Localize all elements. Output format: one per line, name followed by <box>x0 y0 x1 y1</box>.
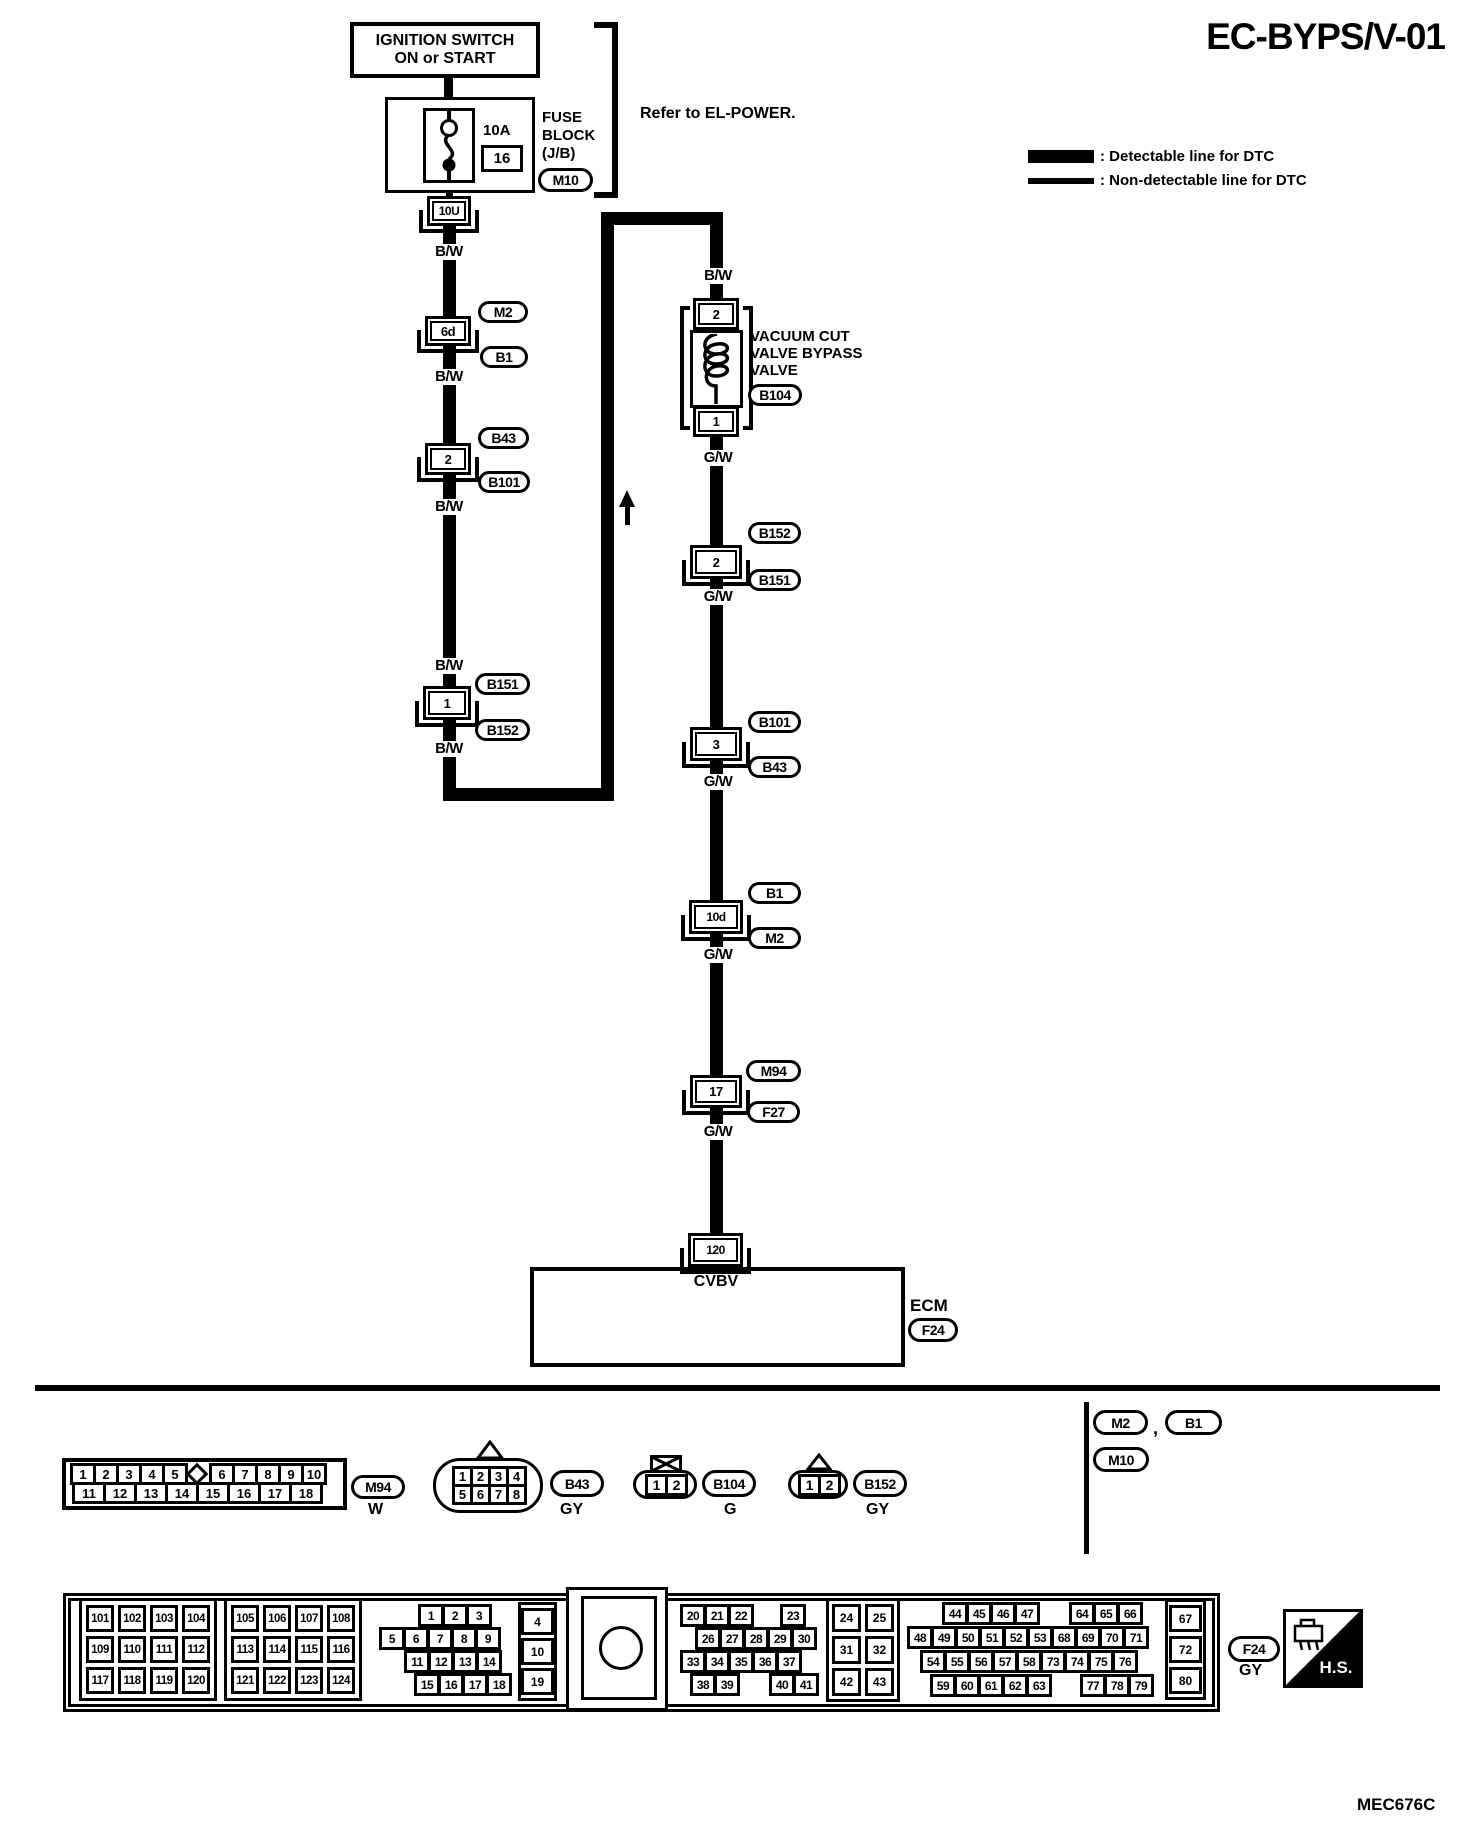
wire-color-label: B/W <box>698 268 738 284</box>
flow-arrow-stem <box>625 505 630 525</box>
pin-cell: 51 <box>979 1626 1005 1649</box>
note-divider-bar <box>1084 1402 1089 1554</box>
hs-view-icon: H.S. <box>1283 1609 1363 1688</box>
pin-cell: 31 <box>832 1636 861 1664</box>
connector-pin: 3 <box>695 732 737 756</box>
ref-label: F24 <box>1243 1641 1266 1657</box>
wire-segment <box>710 225 723 300</box>
connector-right-3: 3 <box>690 727 742 761</box>
ref-label: B1 <box>496 349 513 365</box>
pin-cell: 29 <box>767 1627 793 1650</box>
pin-cell: 7 <box>427 1627 453 1650</box>
b104-pins: 12 <box>645 1474 685 1496</box>
connector-10u: 10U <box>427 196 471 226</box>
connector-ref-f24-view: F24 <box>1228 1636 1280 1662</box>
valve-name-line1: VACUUM CUT <box>750 328 850 345</box>
ref-label: B104 <box>759 387 790 403</box>
connector-pin-10u: 10U <box>432 201 466 221</box>
connector-color-b43: GY <box>560 1501 583 1519</box>
pin-cell: 12 <box>428 1650 454 1673</box>
pin-cell: 46 <box>990 1602 1016 1625</box>
pin-cell: 72 <box>1169 1636 1202 1663</box>
pin-cell: 48 <box>907 1626 933 1649</box>
connector-ecm-120: 120 <box>688 1233 743 1267</box>
pin-cell: 77 <box>1080 1674 1106 1697</box>
pin-cell: 36 <box>752 1650 778 1673</box>
fuse-symbol-box <box>423 108 475 183</box>
pin-cell: 39 <box>714 1673 740 1696</box>
wire-bypass-vertical <box>601 212 614 801</box>
fuse-block-label3: (J/B) <box>542 145 575 162</box>
pin-cell: 117 <box>86 1667 114 1694</box>
wire-color-label: B/W <box>429 658 469 674</box>
pin-cell: 110 <box>118 1636 146 1663</box>
connector-pin: 1 <box>698 411 734 432</box>
ecm-block-d-r3: 3334353637 <box>680 1650 800 1673</box>
ecm-block-d-r2: 2627282930 <box>695 1627 815 1650</box>
pin-cell: 13 <box>134 1482 168 1504</box>
pin-cell: 21 <box>704 1604 730 1627</box>
connector-left-2: 2 <box>425 443 471 475</box>
pin-cell: 17 <box>462 1673 488 1696</box>
ecm-block-f-r3: 545556575873747576 <box>920 1650 1136 1673</box>
connector-pin: 2 <box>695 550 737 574</box>
pin-cell: 55 <box>944 1650 970 1673</box>
ecm-block-b: 105106107108113114115116121122123124 <box>224 1598 362 1701</box>
pin-cell: 12 <box>103 1482 137 1504</box>
ecm-block-f-r1a: 44454647 <box>942 1602 1038 1625</box>
pin-cell: 2 <box>442 1604 468 1627</box>
wire-color-label: G/W <box>697 774 739 790</box>
pin-cell: 101 <box>86 1605 114 1632</box>
bolt-hole-icon <box>599 1626 643 1670</box>
bowtie-keyway-icon <box>650 1455 682 1473</box>
wire-color-label: G/W <box>697 450 739 466</box>
pin-cell: 64 <box>1069 1602 1095 1625</box>
pin-cell: 116 <box>327 1636 355 1663</box>
pin-cell: 107 <box>295 1605 323 1632</box>
pin-cell: 119 <box>150 1667 178 1694</box>
ref-label: M2 <box>494 304 512 320</box>
valve-name-line2: VALVE BYPASS <box>750 345 863 362</box>
connector-ref-m94: M94 <box>351 1475 405 1499</box>
pin-cell: 115 <box>295 1636 323 1663</box>
triangle-keyway-icon <box>806 1453 832 1471</box>
pin-cell: 65 <box>1093 1602 1119 1625</box>
pin-cell: 120 <box>182 1667 210 1694</box>
pin-cell: 16 <box>438 1673 464 1696</box>
connector-pin: 1 <box>428 691 466 715</box>
connector-6d: 6d <box>425 316 471 346</box>
pin-cell: 15 <box>414 1673 440 1696</box>
ref-label: B43 <box>565 1476 589 1492</box>
pin-cell: 1 <box>418 1604 444 1627</box>
pin-cell: 9 <box>475 1627 501 1650</box>
valve-coil-box <box>690 330 743 408</box>
pin-cell: 38 <box>690 1673 716 1696</box>
ecm-label: ECM <box>910 1296 948 1316</box>
pin-cell: 2 <box>665 1474 688 1496</box>
ref-label: M94 <box>365 1479 391 1495</box>
ecm-block-c-r1: 123 <box>418 1604 490 1627</box>
pin-cell: 63 <box>1026 1674 1052 1697</box>
legend-nondetectable-swatch <box>1028 178 1094 184</box>
pin-cell: 76 <box>1112 1650 1138 1673</box>
connector-ref: M94 <box>746 1060 801 1082</box>
pin-cell: 40 <box>769 1673 795 1696</box>
pin-cell: 20 <box>680 1604 706 1627</box>
connector-ref-f24: F24 <box>908 1318 958 1342</box>
pin-cell: 45 <box>966 1602 992 1625</box>
pin-cell: 54 <box>920 1650 946 1673</box>
ref-label: M10 <box>1108 1452 1134 1468</box>
ecm-block-c-r3: 11121314 <box>404 1650 500 1673</box>
fuse-number-box: 16 <box>481 145 523 172</box>
pin-cell: 5 <box>379 1627 405 1650</box>
pin-cell: 49 <box>931 1626 957 1649</box>
pin-cell: 78 <box>1104 1674 1130 1697</box>
pin-cell: 33 <box>680 1650 706 1673</box>
pin-cell: 75 <box>1088 1650 1114 1673</box>
pin-cell: 123 <box>295 1667 323 1694</box>
ref-label: B101 <box>488 474 519 490</box>
pin-cell: 122 <box>263 1667 291 1694</box>
pin-cell: 23 <box>780 1604 806 1627</box>
pin-cell: 69 <box>1075 1626 1101 1649</box>
pin-cell: 118 <box>118 1667 146 1694</box>
ecm-block-d-r4a: 3839 <box>690 1673 738 1696</box>
connector-ref: B43 <box>478 427 529 449</box>
pin-cell: 58 <box>1016 1650 1042 1673</box>
figure-code: MEC676C <box>1357 1795 1435 1815</box>
pin-cell: 70 <box>1099 1626 1125 1649</box>
connector-pin: 2 <box>698 303 734 325</box>
connector-ref-b104: B104 <box>748 384 802 406</box>
wiring-diagram-page: { "title": "EC-BYPS/V-01", "legend": { "… <box>0 0 1472 1840</box>
connector-ref: B152 <box>475 719 530 741</box>
pin-cell: 4 <box>521 1608 554 1635</box>
ecm-block-c-r4: 15161718 <box>414 1673 510 1696</box>
ref-label: F24 <box>922 1322 945 1338</box>
connector-ref-m10-label: M10 <box>553 172 579 188</box>
connector-face-b152: 12 <box>788 1470 848 1499</box>
pin-cell: 121 <box>231 1667 259 1694</box>
connector-pin: 17 <box>695 1080 737 1103</box>
connector-ref: B152 <box>748 522 801 544</box>
ref-label: B151 <box>487 676 518 692</box>
wire-color-label: B/W <box>429 369 469 385</box>
ecm-block-d-r1b: 23 <box>780 1604 804 1627</box>
pin-cell: 3 <box>466 1604 492 1627</box>
pin-cell: 80 <box>1169 1667 1202 1694</box>
pin-cell: 59 <box>930 1674 956 1697</box>
valve-pin-1: 1 <box>693 406 739 437</box>
connector-ref: B1 <box>748 882 801 904</box>
pin-cell: 8 <box>506 1484 527 1505</box>
pin-cell: 30 <box>791 1627 817 1650</box>
wire-color-label: G/W <box>697 589 739 605</box>
ecm-block-f-r4b: 777879 <box>1080 1674 1152 1697</box>
ecm-block-a-cells: 101102103104109110111112117118119120 <box>82 1601 214 1698</box>
fuse-block-label1: FUSE <box>542 109 582 126</box>
ref-label: B101 <box>759 714 790 730</box>
pin-cell: 10 <box>521 1638 554 1665</box>
connector-ref-b152-view: B152 <box>853 1470 907 1497</box>
pin-cell: 18 <box>486 1673 512 1696</box>
fuse-block-label2: BLOCK <box>542 127 595 144</box>
pin-cell: 44 <box>942 1602 968 1625</box>
ecm-block-e: 242531324243 <box>826 1598 900 1702</box>
pin-cell: 111 <box>150 1636 178 1663</box>
page-title: EC-BYPS/V-01 <box>1095 16 1445 58</box>
legend-detectable-swatch <box>1028 150 1094 163</box>
ref-label: M2 <box>765 930 783 946</box>
connector-ref: B101 <box>748 711 801 733</box>
pin-cell: 11 <box>72 1482 106 1504</box>
triangle-keyway-icon <box>476 1440 504 1460</box>
ignition-switch-box: IGNITION SWITCH ON or START <box>350 22 540 78</box>
note-ref-m2: M2 <box>1093 1410 1148 1435</box>
pin-cell: 35 <box>728 1650 754 1673</box>
connector-pin: 2 <box>430 448 466 470</box>
wire-color-label: G/W <box>697 1124 739 1140</box>
fuse-rating: 10A <box>483 122 511 139</box>
legend-nondetectable-label: : Non-detectable line for DTC <box>1100 172 1307 189</box>
pin-cell: 103 <box>150 1605 178 1632</box>
pin-cell: 6 <box>403 1627 429 1650</box>
pin-cell: 42 <box>832 1668 861 1696</box>
fuse-number: 16 <box>494 150 511 167</box>
connector-ref: B43 <box>748 756 801 778</box>
ref-label: B152 <box>487 722 518 738</box>
pin-cell: 18 <box>289 1482 323 1504</box>
m94-row2: 1112131415161718 <box>72 1482 343 1504</box>
ecm-bolt-inner <box>581 1596 657 1700</box>
ecm-block-f-r2: 48495051525368697071 <box>907 1626 1147 1649</box>
ecm-block-d-r4b: 4041 <box>769 1673 817 1696</box>
connector-pin: 120 <box>693 1238 738 1262</box>
note-ref-m10: M10 <box>1093 1447 1149 1472</box>
pin-cell: 17 <box>258 1482 292 1504</box>
ref-label: B104 <box>713 1476 744 1492</box>
fuse-icon <box>426 111 472 180</box>
valve-name-line3: VALVE <box>750 362 798 379</box>
note-comma: , <box>1153 1418 1158 1439</box>
hs-label: H.S. <box>1319 1658 1352 1677</box>
pin-cell: 24 <box>832 1604 861 1632</box>
pin-cell: 2 <box>818 1474 841 1496</box>
pin-cell: 26 <box>695 1627 721 1650</box>
pin-cell: 53 <box>1027 1626 1053 1649</box>
connector-ref-b104-view: B104 <box>702 1470 756 1497</box>
pin-cell: 56 <box>968 1650 994 1673</box>
valve-cradle-left <box>680 306 690 430</box>
pin-cell: 105 <box>231 1605 259 1632</box>
connector-ref: M2 <box>748 927 801 949</box>
pin-cell: 124 <box>327 1667 355 1694</box>
pin-cell: 113 <box>231 1636 259 1663</box>
pin-cell: 66 <box>1117 1602 1143 1625</box>
pin-cell: 60 <box>954 1674 980 1697</box>
connector-ref-m10: M10 <box>538 168 593 192</box>
refer-note: Refer to EL-POWER. <box>640 105 796 123</box>
connector-color-f24: GY <box>1239 1662 1262 1680</box>
connector-left-1: 1 <box>423 686 471 720</box>
ref-label: B43 <box>762 759 786 775</box>
pin-cell: 15 <box>196 1482 230 1504</box>
pin-cell: 43 <box>865 1668 894 1696</box>
pin-cell: 61 <box>978 1674 1004 1697</box>
connector-face-b43: 1234 5678 <box>433 1458 543 1513</box>
pin-cell: 79 <box>1128 1674 1154 1697</box>
connector-pin: 6d <box>430 321 466 341</box>
pin-cell: 27 <box>719 1627 745 1650</box>
connector-ref: M2 <box>478 301 528 323</box>
pin-cell: 104 <box>182 1605 210 1632</box>
ecm-block-a: 101102103104109110111112117118119120 <box>79 1598 217 1701</box>
ignition-switch-line1: IGNITION SWITCH <box>354 32 536 50</box>
ecm-col-left: 41019 <box>518 1602 557 1701</box>
pin-cell: 28 <box>743 1627 769 1650</box>
legend-detectable-label: : Detectable line for DTC <box>1100 148 1274 165</box>
connector-ref: B1 <box>480 346 528 368</box>
connector-color-m94: W <box>368 1501 383 1519</box>
ecm-bolt-housing <box>566 1587 668 1711</box>
ecm-block-f-r1b: 646566 <box>1069 1602 1141 1625</box>
section-divider <box>35 1385 1440 1391</box>
coil-icon <box>693 334 740 404</box>
pin-cell: 22 <box>728 1604 754 1627</box>
pin-cell: 52 <box>1003 1626 1029 1649</box>
connector-ref: F27 <box>747 1101 800 1123</box>
connector-ref: B101 <box>478 471 530 493</box>
pin-cell: 11 <box>404 1650 430 1673</box>
ref-label: B1 <box>766 885 783 901</box>
pin-cell: 14 <box>476 1650 502 1673</box>
ecm-block-d-r1a: 202122 <box>680 1604 752 1627</box>
wire-color-label: G/W <box>697 947 739 963</box>
b43-row2: 5678 <box>452 1484 524 1505</box>
ecm-block-b-cells: 105106107108113114115116121122123124 <box>227 1601 359 1698</box>
pin-cell: 57 <box>992 1650 1018 1673</box>
pin-cell: 102 <box>118 1605 146 1632</box>
ref-label: B1 <box>1185 1415 1202 1431</box>
ref-label: M2 <box>1111 1415 1129 1431</box>
ecm-connector-assembly: 101102103104109110111112117118119120 105… <box>63 1593 1220 1712</box>
pin-cell: 14 <box>165 1482 199 1504</box>
ecm-block-f-r4a: 5960616263 <box>930 1674 1050 1697</box>
connector-face-b104: 12 <box>633 1470 697 1499</box>
ecm-signal-label: CVBV <box>666 1273 766 1291</box>
pin-cell: 25 <box>865 1604 894 1632</box>
ecm-block-e-cells: 242531324243 <box>829 1601 897 1699</box>
ref-label: B152 <box>864 1476 895 1492</box>
valve-pin-2: 2 <box>693 298 739 330</box>
connector-right-17: 17 <box>690 1075 742 1108</box>
connector-ref: B151 <box>475 673 530 695</box>
ignition-switch-line2: ON or START <box>354 50 536 68</box>
pin-cell: 112 <box>182 1636 210 1663</box>
pin-cell: 106 <box>263 1605 291 1632</box>
pin-cell: 73 <box>1040 1650 1066 1673</box>
connector-face-m94: 12345 678910 1112131415161718 <box>62 1458 347 1510</box>
wire-top-horizontal <box>602 212 723 225</box>
pin-cell: 68 <box>1051 1626 1077 1649</box>
pin-cell: 37 <box>776 1650 802 1673</box>
pin-cell: 108 <box>327 1605 355 1632</box>
pin-cell: 62 <box>1002 1674 1028 1697</box>
ecm-block-c-r2: 56789 <box>379 1627 499 1650</box>
note-ref-b1: B1 <box>1165 1410 1222 1435</box>
ecm-col-right: 677280 <box>1165 1599 1206 1700</box>
pin-cell: 41 <box>793 1673 819 1696</box>
wire-segment <box>443 226 456 318</box>
pin-cell: 71 <box>1123 1626 1149 1649</box>
connector-right-10d: 10d <box>689 900 743 934</box>
pin-cell: 34 <box>704 1650 730 1673</box>
connector-pin: 10d <box>694 905 738 929</box>
pin-cell: 67 <box>1169 1605 1202 1632</box>
wire-color-label: B/W <box>429 499 469 515</box>
wire-segment <box>443 346 456 445</box>
connector-ref-b43-view: B43 <box>550 1470 604 1497</box>
ref-label: B151 <box>759 572 790 588</box>
refer-bracket <box>594 22 618 198</box>
connector-right-2: 2 <box>690 545 742 579</box>
pin-cell: 32 <box>865 1636 894 1664</box>
pin-cell: 50 <box>955 1626 981 1649</box>
pin-cell: 47 <box>1014 1602 1040 1625</box>
wire-bottom-horizontal <box>443 788 614 801</box>
ref-label: F27 <box>762 1104 785 1120</box>
pin-cell: 74 <box>1064 1650 1090 1673</box>
ref-label: M94 <box>761 1063 787 1079</box>
ref-label: B152 <box>759 525 790 541</box>
connector-ref: B151 <box>748 569 801 591</box>
b152-pins: 12 <box>798 1474 838 1496</box>
ref-label: B43 <box>491 430 515 446</box>
pin-cell: 13 <box>452 1650 478 1673</box>
pin-cell: 8 <box>451 1627 477 1650</box>
pin-cell: 109 <box>86 1636 114 1663</box>
pin-cell: 114 <box>263 1636 291 1663</box>
wire-color-label: B/W <box>429 741 469 757</box>
pin-cell: 16 <box>227 1482 261 1504</box>
pin-cell: 19 <box>521 1668 554 1695</box>
connector-color-b104: G <box>724 1501 736 1519</box>
wire-color-label: B/W <box>429 244 469 260</box>
connector-color-b152: GY <box>866 1501 889 1519</box>
